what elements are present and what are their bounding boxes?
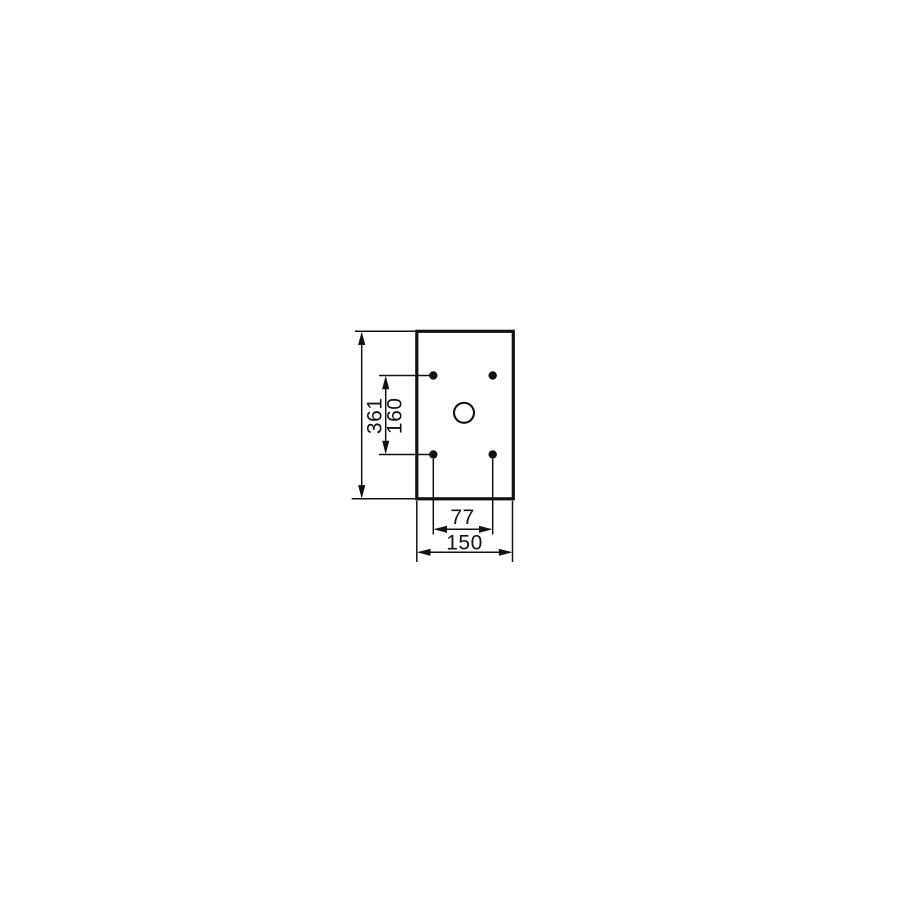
arrowhead-up bbox=[358, 332, 365, 346]
dimension-drawing: 361 160 77 150 bbox=[0, 0, 900, 900]
arrowhead-left bbox=[417, 549, 431, 556]
arrowhead-left bbox=[434, 526, 448, 533]
drawing-canvas: 361 160 77 150 bbox=[0, 0, 900, 900]
arrowhead-right bbox=[499, 549, 513, 556]
mounting-hole-top-right bbox=[489, 371, 497, 379]
mounting-hole-bottom-right bbox=[489, 450, 497, 458]
dim-label-hole-pitch-vertical: 160 bbox=[384, 398, 407, 435]
dim-label-hole-pitch-horizontal: 77 bbox=[450, 506, 474, 529]
arrowhead-down bbox=[382, 441, 389, 455]
arrowhead-down bbox=[358, 485, 365, 499]
arrowhead-up bbox=[382, 376, 389, 390]
center-hole bbox=[454, 403, 474, 423]
dim-label-overall-width: 150 bbox=[446, 532, 483, 555]
plate-outline bbox=[417, 331, 514, 499]
